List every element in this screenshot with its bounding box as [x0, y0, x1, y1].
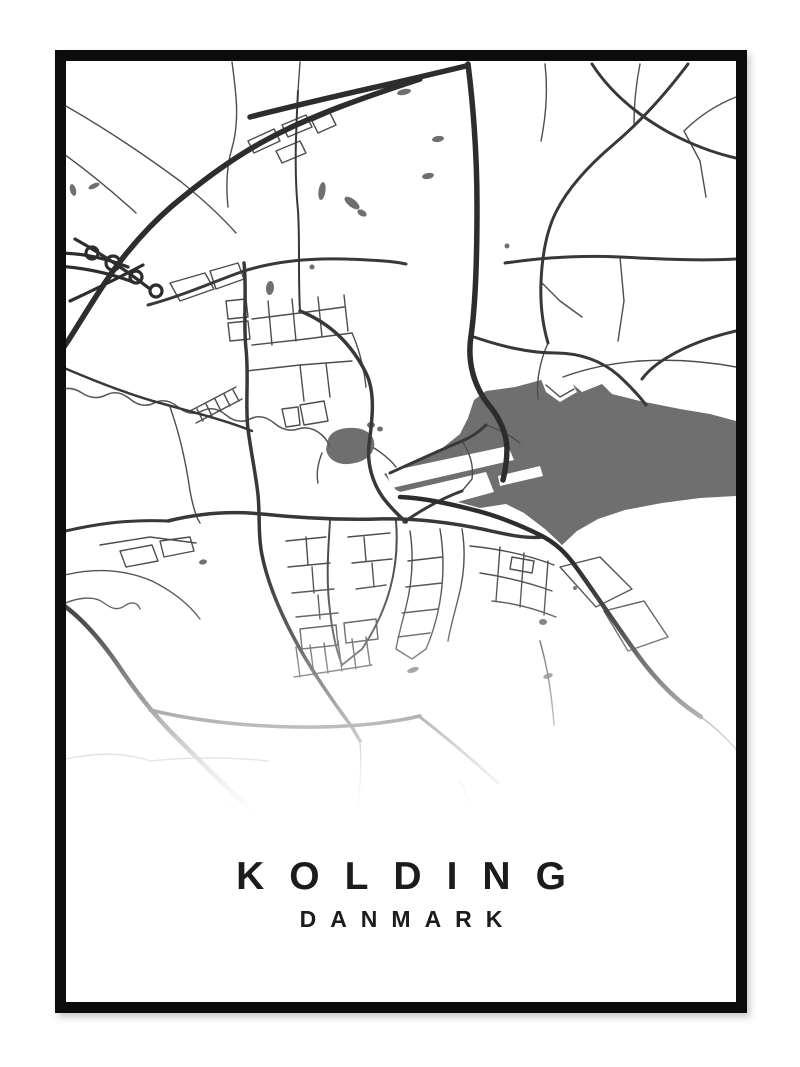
- fade-overlay: [66, 560, 736, 1002]
- river: [66, 388, 330, 447]
- page: { "poster": { "title": "KOLDING", "subti…: [0, 0, 800, 1067]
- pond: [88, 181, 101, 191]
- pond: [356, 208, 368, 218]
- poster-frame: KOLDING DANMARK: [55, 50, 747, 1013]
- pond: [342, 194, 361, 211]
- pond: [505, 244, 510, 249]
- pond: [422, 172, 435, 180]
- pond: [317, 182, 326, 201]
- interchange-ramps: [66, 239, 162, 301]
- pond: [265, 281, 274, 296]
- poster-title: KOLDING: [66, 857, 736, 896]
- pond: [69, 183, 78, 196]
- poster-subtitle: DANMARK: [66, 908, 736, 931]
- pond: [310, 265, 315, 270]
- pond: [432, 135, 445, 143]
- pond: [377, 427, 383, 432]
